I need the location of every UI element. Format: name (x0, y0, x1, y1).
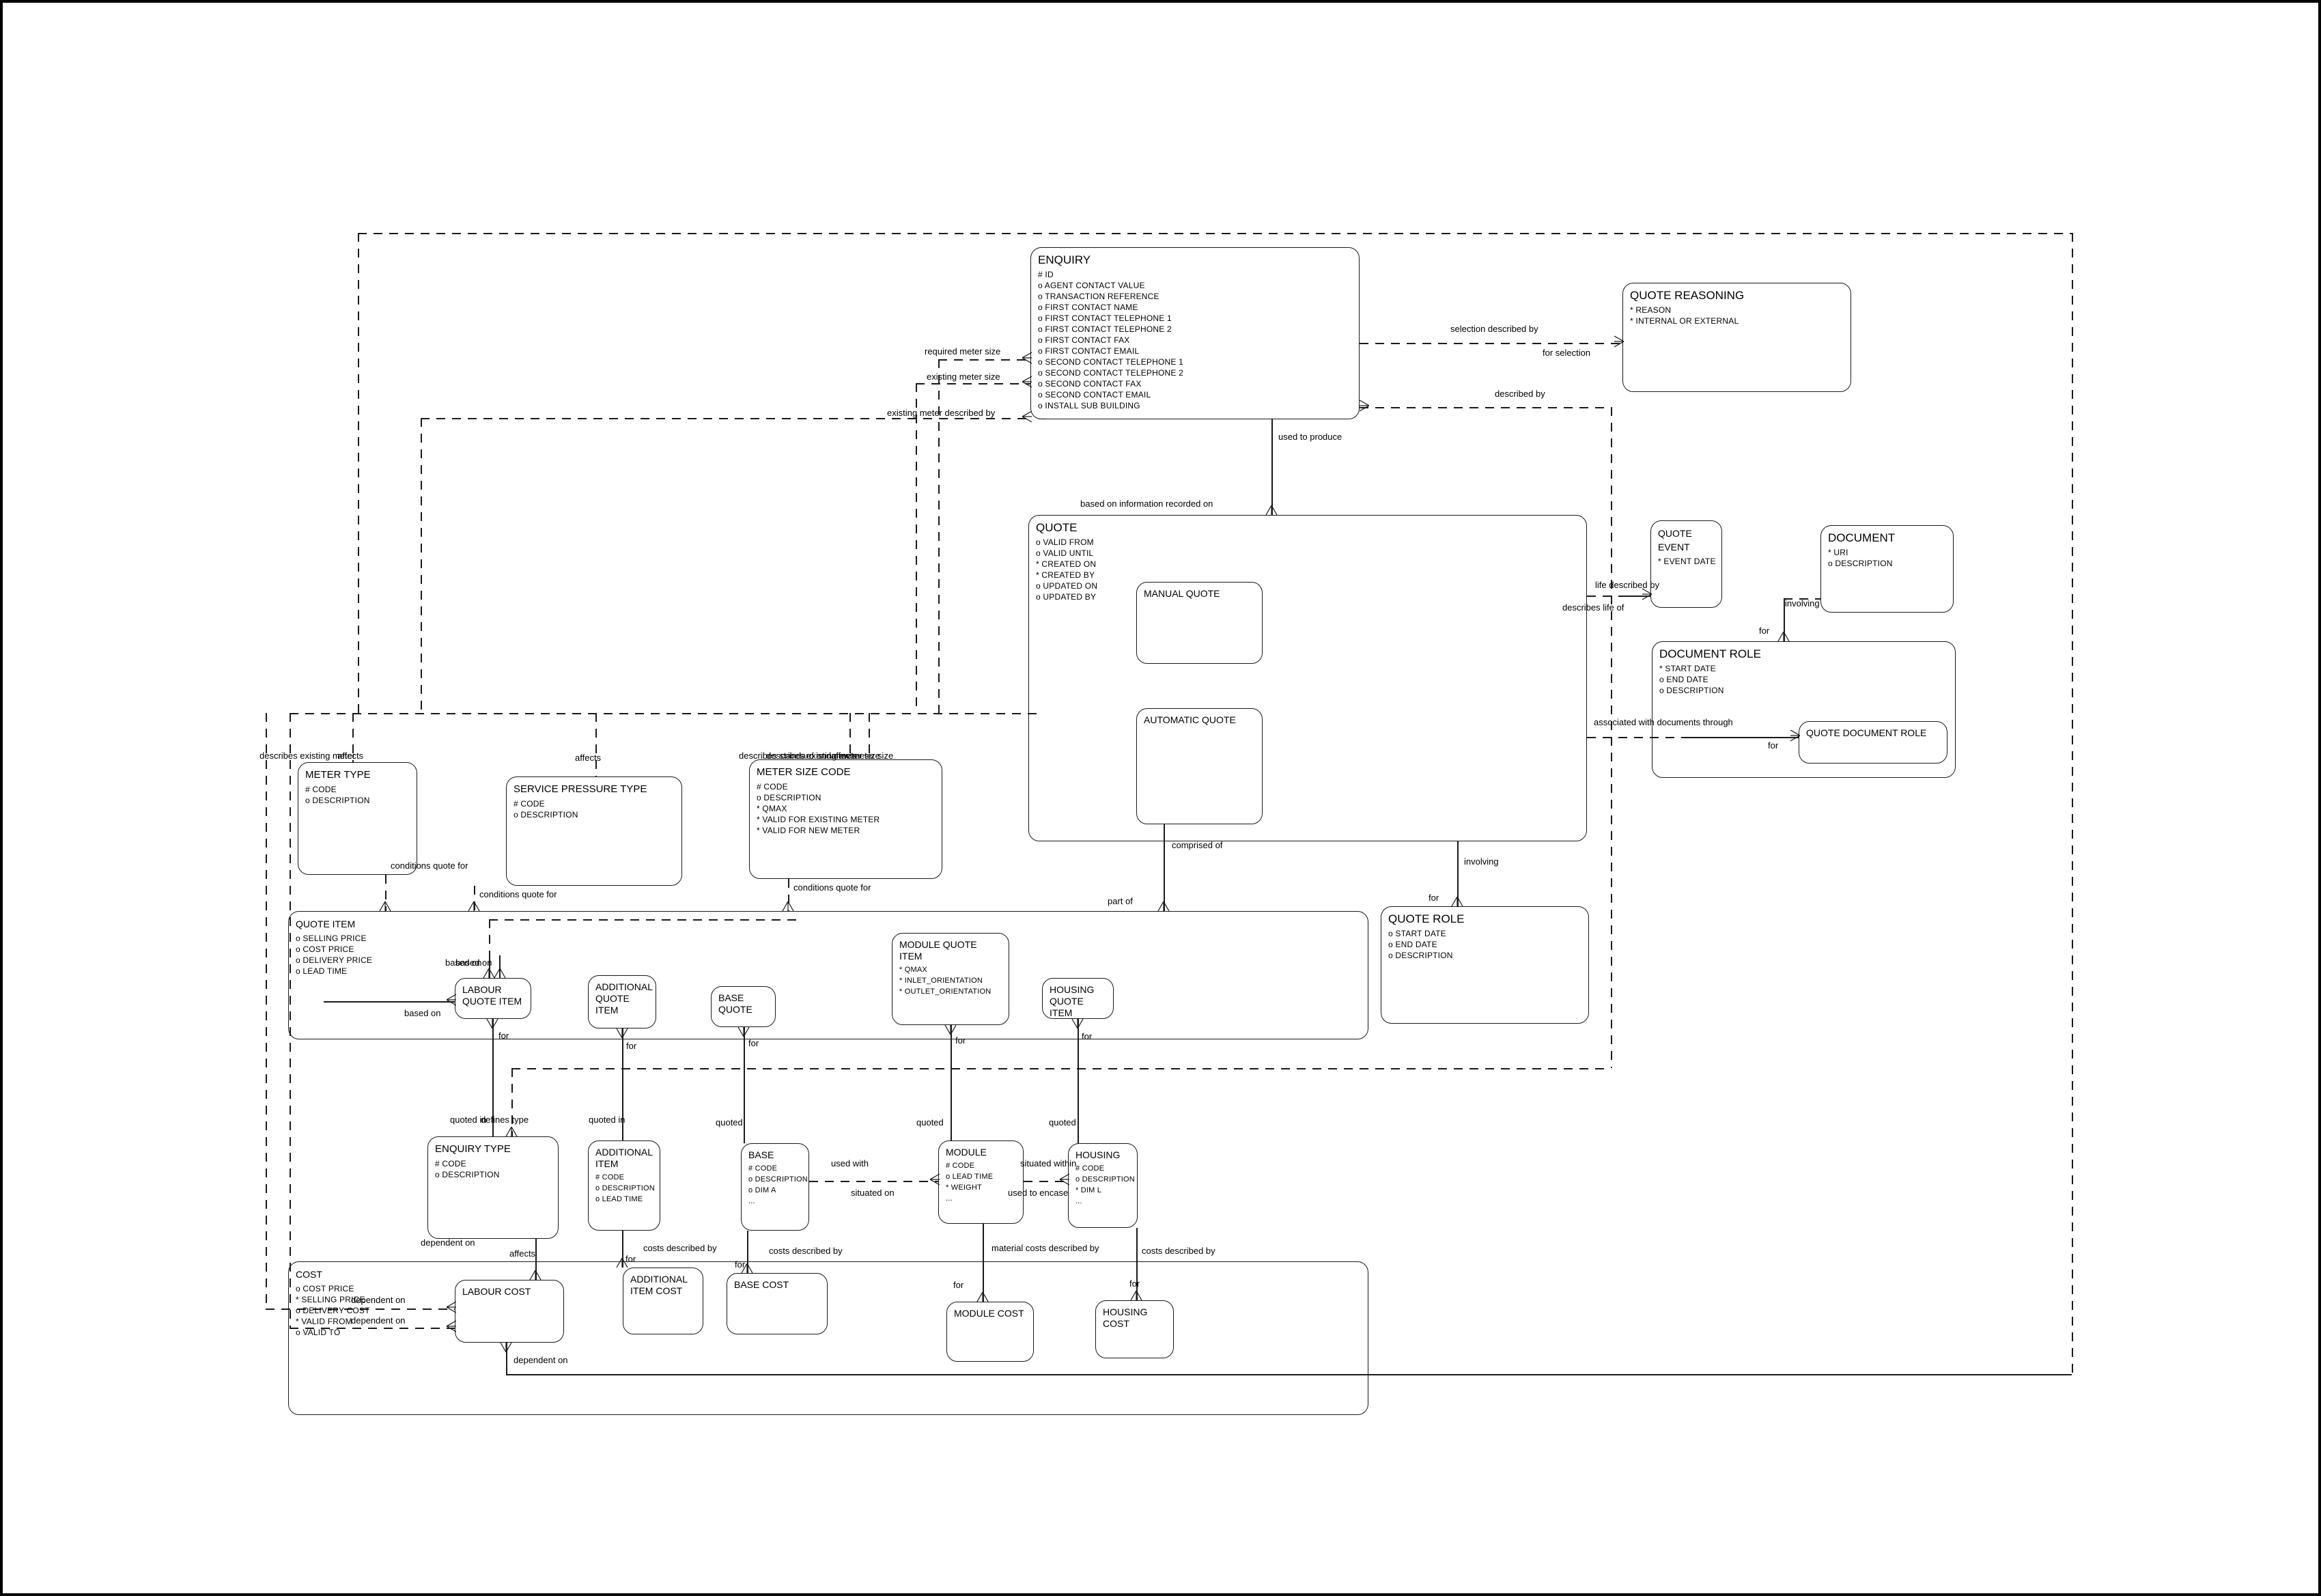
rel-label-dependent-on-bottom: dependent on (514, 1355, 568, 1365)
entity-meter-size-code: METER SIZE CODE# CODEo DESCRIPTION* QMAX… (749, 759, 942, 879)
crowfoot-icon (505, 1127, 518, 1136)
attribute: * EVENT DATE (1658, 556, 1715, 567)
connector (2072, 233, 2073, 1374)
rel-label-used-to-produce: used to produce (1278, 432, 1342, 442)
attribute: o DESCRIPTION (748, 1174, 802, 1185)
connector (809, 1181, 938, 1182)
entity-quote-event: QUOTE EVENT* EVENT DATE (1650, 520, 1722, 608)
rel-label-for-lqi: for (498, 1031, 509, 1041)
entity-title: AUTOMATIC QUOTE (1144, 714, 1255, 726)
rel-label-involving-doc: involving (1785, 598, 1820, 608)
entity-title: MANUAL QUOTE (1144, 588, 1255, 600)
attribute: # CODE (595, 1172, 653, 1183)
entity-title: MODULE COST (954, 1308, 1026, 1319)
attribute: # CODE (514, 798, 675, 809)
entity-title: ADDITIONAL QUOTE ITEM (595, 981, 649, 1016)
attribute: o VALID UNTIL (1036, 548, 1579, 559)
rel-label-for-hqi: for (1082, 1031, 1092, 1041)
crowfoot-icon (1265, 505, 1278, 515)
attribute: # ID (1038, 269, 1352, 280)
connector (421, 418, 1030, 419)
entity-module-cost: MODULE COST (946, 1302, 1034, 1362)
entity-quote: QUOTEo VALID FROMo VALID UNTIL* CREATED … (1028, 515, 1587, 841)
rel-label-conditions-quote-for-msc: conditions quote for (793, 882, 871, 893)
attribute: # CODE (1075, 1163, 1130, 1174)
connector (358, 233, 359, 713)
entity-title: COST (296, 1268, 1361, 1281)
entity-title: HOUSING QUOTE ITEM (1050, 984, 1106, 1019)
attribute: o DESCRIPTION (1828, 558, 1946, 569)
entity-document: DOCUMENT* URIo DESCRIPTION (1820, 525, 1954, 613)
entity-title: LABOUR COST (462, 1286, 557, 1298)
entity-title: METER TYPE (305, 768, 410, 782)
rel-label-situated-within: situated within (1020, 1158, 1076, 1168)
attribute: # CODE (305, 784, 410, 795)
entity-title: ENQUIRY (1038, 253, 1352, 267)
entity-enquiry: ENQUIRY# IDo AGENT CONTACT VALUEo TRANSA… (1030, 247, 1360, 419)
attribute: * VALID FOR NEW METER (757, 825, 935, 836)
attribute: o SECOND CONTACT EMAIL (1038, 389, 1352, 400)
attribute-list: # CODEo DESCRIPTIONo LEAD TIME (595, 1172, 653, 1205)
attribute: o DESCRIPTION (435, 1169, 551, 1180)
rel-label-for-doc: for (1759, 626, 1769, 636)
entity-base-quote: BASE QUOTE (711, 986, 776, 1027)
rel-label-quoted-h: quoted (1049, 1117, 1076, 1128)
attribute: * REASON (1630, 305, 1844, 316)
entity-quote-document-role: QUOTE DOCUMENT ROLE (1799, 721, 1947, 764)
entity-title: ADDITIONAL ITEM (595, 1147, 653, 1170)
rel-label-dependent-on-et: dependent on (421, 1237, 475, 1248)
entity-module-quote-item: MODULE QUOTE ITEM* QMAX* INLET_ORIENTATI… (892, 933, 1009, 1025)
connector (511, 1068, 1611, 1069)
attribute-list: # CODEo DESCRIPTION* QMAX* VALID FOR EXI… (757, 781, 935, 836)
attribute: o COST PRICE (296, 944, 1361, 955)
attribute: * DIM L (1075, 1185, 1130, 1196)
crowfoot-icon (379, 901, 391, 911)
crowfoot-icon (1360, 400, 1369, 412)
rel-label-describes-existing-meter-size: describes existing meter size (766, 751, 880, 761)
attribute: o DESCRIPTION (1075, 1174, 1130, 1185)
connector (1271, 419, 1273, 515)
entity-title: HOUSING COST (1103, 1306, 1166, 1330)
entity-title: SERVICE PRESSURE TYPE (514, 783, 675, 796)
connector (916, 383, 1030, 384)
attribute: o SECOND CONTACT TELEPHONE 2 (1038, 367, 1352, 378)
entity-manual-quote: MANUAL QUOTE (1136, 582, 1263, 664)
attribute: # CODE (946, 1160, 1016, 1171)
crowfoot-icon (468, 901, 480, 911)
rel-label-comprised-of: comprised of (1172, 840, 1222, 850)
rel-label-for-hc: for (1129, 1278, 1140, 1289)
entity-additional-quote-item: ADDITIONAL QUOTE ITEM (588, 975, 656, 1028)
attribute: * INTERNAL OR EXTERNAL (1630, 316, 1844, 326)
entity-title: QUOTE ROLE (1388, 912, 1581, 926)
attribute-list: * EVENT DATE (1658, 556, 1715, 567)
rel-label-quoted-in-ai: quoted in (589, 1115, 625, 1125)
connector (595, 713, 597, 776)
rel-label-for-qdr: for (1768, 740, 1778, 751)
connector (266, 713, 267, 1308)
crowfoot-icon (1451, 897, 1463, 906)
crowfoot-icon (1777, 632, 1790, 641)
rel-label-affects-mt: affects (337, 751, 363, 761)
rel-label-dependent-on-l2: dependent on (351, 1315, 406, 1326)
rel-label-based-on-3: based on (404, 1008, 441, 1018)
attribute: o END DATE (1659, 674, 1948, 685)
rel-label-for-role: for (1429, 893, 1439, 903)
erd-diagram: ENQUIRY# IDo AGENT CONTACT VALUEo TRANSA… (0, 0, 2321, 1596)
attribute: o AGENT CONTACT VALUE (1038, 280, 1352, 291)
attribute: ... (1075, 1196, 1130, 1207)
entity-title: DOCUMENT ROLE (1659, 647, 1948, 661)
entity-quote-role: QUOTE ROLEo START DATEo END DATEo DESCRI… (1381, 906, 1589, 1024)
attribute: * CREATED BY (1036, 570, 1579, 580)
rel-label-defines-type: defines type (481, 1115, 529, 1125)
attribute: * URI (1828, 547, 1946, 558)
attribute: o FIRST CONTACT TELEPHONE 2 (1038, 324, 1352, 335)
rel-label-quoted-m: quoted (916, 1117, 944, 1128)
attribute: * QMAX (899, 964, 1002, 975)
attribute-list: # CODEo DESCRIPTIONo DIM A... (748, 1163, 802, 1207)
attribute: o END DATE (1388, 939, 1581, 950)
rel-label-dependent-on-l1: dependent on (351, 1295, 406, 1305)
attribute: * INLET_ORIENTATION (899, 975, 1002, 986)
attribute: # CODE (748, 1163, 802, 1174)
attribute-list: # IDo AGENT CONTACT VALUEo TRANSACTION R… (1038, 269, 1352, 422)
entity-title: HOUSING (1075, 1149, 1130, 1161)
entity-labour-quote-item: LABOUR QUOTE ITEM (455, 978, 531, 1019)
entity-additional-item: ADDITIONAL ITEM# CODEo DESCRIPTIONo LEAD… (588, 1140, 660, 1231)
attribute: o UPDATED BY (1036, 591, 1579, 602)
entity-service-pressure-type: SERVICE PRESSURE TYPE# CODEo DESCRIPTION (506, 776, 682, 886)
entity-quote-item: QUOTE ITEMo SELLING PRICEo COST PRICEo D… (288, 911, 1368, 1039)
rel-label-conditions-quote-for-mt: conditions quote for (391, 860, 468, 871)
attribute: o FIRST CONTACT NAME (1038, 302, 1352, 313)
attribute: o TRANSACTION REFERENCE (1038, 291, 1352, 302)
rel-label-described-by: described by (1495, 389, 1545, 399)
rel-label-for-bc: for (735, 1259, 745, 1270)
attribute: * WEIGHT (946, 1182, 1016, 1193)
entity-additional-item-cost: ADDITIONAL ITEM COST (623, 1268, 703, 1334)
crowfoot-icon (1022, 410, 1032, 423)
rel-label-existing-meter-size: existing meter size (927, 372, 1000, 382)
connector (1360, 343, 1622, 344)
entity-title: MODULE QUOTE ITEM (899, 939, 1002, 962)
entity-title: QUOTE EVENT (1658, 527, 1715, 554)
rel-label-existing-meter-described-by: existing meter described by (887, 408, 995, 418)
entity-housing: HOUSING# CODEo DESCRIPTION* DIM L... (1068, 1143, 1138, 1228)
connector (421, 418, 422, 713)
rel-label-for-selection: for selection (1543, 348, 1590, 358)
attribute: ... (748, 1196, 802, 1207)
attribute: o SELLING PRICE (296, 933, 1361, 944)
rel-label-costs-described-by-b: costs described by (769, 1246, 843, 1256)
rel-label-used-with: used with (831, 1158, 869, 1168)
attribute-list: * URIo DESCRIPTION (1828, 547, 1946, 569)
attribute: o VALID FROM (1036, 537, 1579, 548)
attribute: o DESCRIPTION (1388, 950, 1581, 961)
connector (290, 713, 1041, 714)
rel-label-required-meter-size: required meter size (925, 346, 1000, 356)
attribute: o LEAD TIME (595, 1194, 653, 1205)
rel-label-situated-on: situated on (851, 1188, 895, 1198)
rel-label-for-bq: for (748, 1038, 759, 1048)
entity-enquiry-type: ENQUIRY TYPE# CODEo DESCRIPTION (427, 1136, 559, 1239)
rel-label-involving-role: involving (1464, 856, 1499, 867)
entity-cost: COSTo COST PRICE* SELLING PRICEo DELIVER… (288, 1261, 1368, 1415)
attribute: o DESCRIPTION (757, 792, 935, 803)
crowfoot-icon (782, 901, 794, 911)
connector (938, 359, 1030, 361)
entity-housing-quote-item: HOUSING QUOTE ITEM (1042, 978, 1114, 1019)
attribute: # CODE (435, 1158, 551, 1169)
attribute: * START DATE (1659, 663, 1948, 674)
attribute-list: # CODEo DESCRIPTION (514, 798, 675, 820)
attribute: o DESCRIPTION (305, 795, 410, 806)
attribute-list: o START DATEo END DATEo DESCRIPTION (1388, 928, 1581, 961)
attribute-list: * START DATEo END DATEo DESCRIPTION (1659, 663, 1948, 696)
connector (916, 383, 917, 713)
rel-label-assoc-docs: associated with documents through (1594, 717, 1733, 727)
attribute: o FIRST CONTACT TELEPHONE 1 (1038, 313, 1352, 324)
entity-base: BASE# CODEo DESCRIPTIONo DIM A... (741, 1143, 809, 1231)
rel-label-for-mc: for (953, 1280, 963, 1290)
connector (744, 1027, 745, 1143)
entity-title: MODULE (946, 1147, 1016, 1158)
rel-label-part-of: part of (1108, 896, 1133, 906)
entity-title: QUOTE DOCUMENT ROLE (1806, 727, 1940, 739)
connector (951, 1025, 952, 1140)
attribute: o LEAD TIME (946, 1171, 1016, 1182)
entity-labour-cost: LABOUR COST (455, 1280, 564, 1343)
attribute: o DESCRIPTION (1659, 685, 1948, 696)
connector (358, 233, 2072, 234)
attribute-list: o VALID FROMo VALID UNTIL* CREATED ON* C… (1036, 537, 1579, 602)
attribute: * CREATED ON (1036, 559, 1579, 570)
rel-label-quoted-b: quoted (716, 1117, 743, 1128)
entity-title: ENQUIRY TYPE (435, 1143, 551, 1156)
attribute: o SECOND CONTACT TELEPHONE 1 (1038, 356, 1352, 367)
attribute-list: * QMAX* INLET_ORIENTATION* OUTLET_ORIENT… (899, 964, 1002, 997)
rel-label-for-aqi: for (626, 1041, 636, 1051)
attribute-list: o SELLING PRICEo COST PRICEo DELIVERY PR… (296, 933, 1361, 977)
rel-label-affects-et: affects (509, 1248, 535, 1259)
attribute: o SECOND CONTACT FAX (1038, 378, 1352, 389)
attribute: o START DATE (1388, 928, 1581, 939)
rel-label-used-to-encase: used to encase (1008, 1188, 1068, 1198)
rel-label-conditions-quote-for-spt: conditions quote for (479, 889, 557, 899)
rel-label-for-aic: for (625, 1254, 636, 1264)
rel-label-describes-life-of: describes life of (1562, 602, 1624, 613)
connector (1587, 596, 1620, 597)
entity-quote-reasoning: QUOTE REASONING* REASON* INTERNAL OR EXT… (1622, 283, 1851, 392)
attribute: o FIRST CONTACT EMAIL (1038, 346, 1352, 356)
entity-title: QUOTE (1036, 521, 1579, 535)
entity-title: LABOUR QUOTE ITEM (462, 984, 524, 1007)
attribute: o DESCRIPTION (514, 809, 675, 820)
attribute: ... (946, 1193, 1016, 1204)
attribute-list: # CODEo DESCRIPTION* DIM L... (1075, 1163, 1130, 1207)
entity-title: BASE (748, 1149, 802, 1161)
attribute: # CODE (757, 781, 935, 792)
attribute-list: # CODEo LEAD TIME* WEIGHT... (946, 1160, 1016, 1204)
rel-label-selection-described-by: selection described by (1450, 324, 1538, 334)
attribute: o DESCRIPTION (595, 1183, 653, 1194)
crowfoot-icon (1157, 901, 1170, 911)
rel-label-affects-spt: affects (575, 753, 601, 763)
attribute: o FIRST CONTACT FAX (1038, 335, 1352, 346)
entity-title: QUOTE REASONING (1630, 289, 1844, 303)
entity-automatic-quote: AUTOMATIC QUOTE (1136, 708, 1263, 824)
entity-title: ADDITIONAL ITEM COST (630, 1274, 696, 1297)
attribute: o DIM A (748, 1185, 802, 1196)
entity-base-cost: BASE COST (727, 1273, 828, 1334)
rel-label-for-mqi: for (955, 1035, 966, 1046)
entity-title: METER SIZE CODE (757, 766, 935, 779)
rel-label-based-on-2: based on (455, 957, 492, 968)
attribute: o INSTALL SUB BUILDING (1038, 400, 1352, 411)
attribute-list: * REASON* INTERNAL OR EXTERNAL (1630, 305, 1844, 326)
rel-label-costs-described-by-ai: costs described by (643, 1243, 717, 1253)
rel-label-costs-described-by-h: costs described by (1142, 1246, 1215, 1256)
entity-title: DOCUMENT (1828, 531, 1946, 545)
attribute-list: # CODEo DESCRIPTION (435, 1158, 551, 1180)
attribute: * OUTLET_ORIENTATION (899, 986, 1002, 997)
entity-title: BASE COST (734, 1279, 820, 1291)
attribute: o UPDATED ON (1036, 580, 1579, 591)
attribute: * QMAX (757, 803, 935, 814)
rel-label-based-on-info: based on information recorded on (1080, 499, 1213, 509)
rel-label-life-described-by: life described by (1595, 580, 1659, 590)
attribute: * VALID FOR EXISTING METER (757, 814, 935, 825)
entity-title: QUOTE ITEM (296, 917, 1361, 931)
entity-module: MODULE# CODEo LEAD TIME* WEIGHT... (938, 1140, 1024, 1224)
connector (1360, 407, 1611, 408)
entity-title: BASE QUOTE (718, 992, 768, 1016)
connector (511, 1068, 513, 1136)
rel-label-material-costs-described-by: material costs described by (991, 1243, 1099, 1253)
entity-meter-type: METER TYPE# CODEo DESCRIPTION (298, 762, 417, 875)
attribute-list: # CODEo DESCRIPTION (305, 784, 410, 806)
attribute: ... (1038, 411, 1352, 422)
entity-housing-cost: HOUSING COST (1095, 1300, 1174, 1358)
